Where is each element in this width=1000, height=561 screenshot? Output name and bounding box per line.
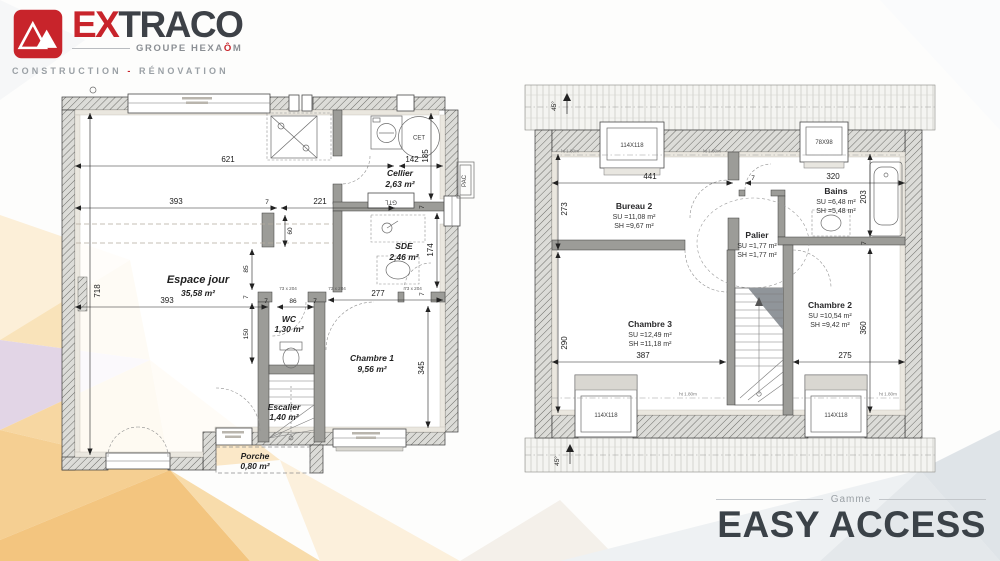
door-size-label: 73 x 204 bbox=[279, 286, 297, 291]
room-bureau2-sh: SH =9,67 m² bbox=[614, 223, 654, 230]
room-chambre3: Chambre 3 bbox=[628, 319, 672, 329]
room-espace-jour: Espace jour bbox=[167, 274, 230, 286]
room-bains-sh: SH =5,48 m² bbox=[816, 208, 856, 215]
ground-floor-plan: CET GTL bbox=[62, 87, 474, 473]
dim-345: 345 bbox=[417, 361, 426, 375]
electrical-panel: GTL bbox=[368, 193, 414, 208]
ff-stairs bbox=[735, 288, 783, 405]
room-sde: SDE bbox=[395, 241, 413, 251]
dim-393a: 393 bbox=[169, 197, 183, 206]
floor-plans: CET GTL bbox=[0, 0, 1000, 561]
room-chambre2-sh: SH =9,42 m² bbox=[810, 322, 850, 329]
water-heater-label: CET bbox=[413, 136, 425, 142]
room-chambre3-su: SU =12,49 m² bbox=[628, 332, 672, 339]
dim-7c: 7 bbox=[264, 298, 268, 305]
dim-85: 85 bbox=[243, 265, 250, 273]
gtl-label: GTL bbox=[385, 199, 397, 205]
dim-203: 203 bbox=[859, 190, 868, 204]
dim-277: 277 bbox=[371, 289, 385, 298]
room-porche: Porche bbox=[241, 451, 270, 461]
dim-142: 142 bbox=[405, 155, 419, 164]
room-bureau2-su: SU =11,08 m² bbox=[613, 214, 657, 221]
logo-group-m: M bbox=[233, 43, 243, 54]
heat-pump-unit: PAC bbox=[457, 162, 474, 198]
roof-angle-bottom: 45° bbox=[553, 456, 561, 466]
ff-roof-bottom: 45° bbox=[525, 438, 935, 472]
dim-273: 273 bbox=[560, 202, 569, 216]
gamme-badge: Gamme EASY ACCESS bbox=[716, 494, 986, 543]
room-wc: WC bbox=[282, 314, 297, 324]
room-chambre1: Chambre 1 bbox=[350, 353, 394, 363]
logo-rule bbox=[72, 48, 130, 49]
dim-718: 718 bbox=[93, 284, 102, 298]
room-chambre1-area: 9,56 m² bbox=[357, 364, 387, 374]
room-cellier: Cellier bbox=[387, 168, 414, 178]
gamme-name: EASY ACCESS bbox=[716, 506, 986, 543]
room-chambre2: Chambre 2 bbox=[808, 300, 852, 310]
window-label-1: 114X118 bbox=[620, 143, 644, 149]
dim-7b-ff: 7 bbox=[861, 241, 868, 245]
extraco-logo: EXTRACO GROUPE HEXAÔM CONSTRUCTION - RÉN… bbox=[12, 8, 262, 76]
window-label-2: 78X98 bbox=[815, 140, 833, 146]
dim-320: 320 bbox=[826, 172, 840, 181]
room-palier: Palier bbox=[745, 230, 769, 240]
dim-290: 290 bbox=[560, 336, 569, 350]
dim-7d: 7 bbox=[313, 298, 317, 305]
room-cellier-area: 2,63 m² bbox=[384, 179, 415, 189]
room-escalier: Escalier bbox=[268, 402, 301, 412]
dim-60: 60 bbox=[287, 227, 294, 235]
pac-label: PAC bbox=[462, 174, 468, 187]
dim-360: 360 bbox=[859, 321, 868, 335]
room-palier-su: SU =1,77 m² bbox=[737, 243, 777, 250]
room-escalier-area: 1,40 m² bbox=[269, 412, 299, 422]
room-bains-su: SU =6,48 m² bbox=[816, 199, 856, 206]
room-espace-jour-area: 35,58 m² bbox=[181, 288, 216, 298]
dim-7b: 7 bbox=[243, 295, 250, 299]
dim-174: 174 bbox=[426, 243, 435, 257]
room-chambre2-su: SU =10,54 m² bbox=[808, 313, 852, 320]
radiator bbox=[78, 277, 87, 311]
logo-ex: EX bbox=[72, 4, 118, 45]
extraco-logo-icon bbox=[12, 8, 64, 60]
room-wc-area: 1,30 m² bbox=[274, 324, 304, 334]
dim-621: 621 bbox=[221, 155, 235, 164]
logo-group-o: Ô bbox=[224, 43, 233, 54]
door-size-label: 73 x 204 bbox=[404, 286, 422, 291]
dim-185: 185 bbox=[421, 149, 430, 163]
window-label-4: 114X118 bbox=[824, 413, 848, 419]
roof-angle-top: 45° bbox=[550, 101, 558, 111]
room-porche-area: 0,80 m² bbox=[240, 461, 270, 471]
logo-group-text: GROUPE HEXA bbox=[136, 43, 224, 54]
ff-roof-top: 45° bbox=[525, 85, 935, 130]
dim-150: 150 bbox=[243, 328, 250, 339]
dim-441: 441 bbox=[643, 172, 657, 181]
first-floor-plan: 45° 45° bbox=[525, 85, 935, 472]
height-mark: ht 1.80m bbox=[561, 149, 579, 154]
height-mark: ht 1.80m bbox=[703, 149, 721, 154]
dim-7e: 7 bbox=[419, 205, 426, 209]
height-mark: ht 1.80m bbox=[679, 392, 697, 397]
dim-387: 387 bbox=[636, 351, 650, 360]
dim-7a-ff: 7 bbox=[751, 175, 755, 182]
room-bains: Bains bbox=[824, 186, 847, 196]
logo-traco: TRACO bbox=[118, 4, 242, 45]
dim-393b: 393 bbox=[160, 296, 174, 305]
gamme-rule-left bbox=[716, 499, 823, 500]
dim-7f: 7 bbox=[419, 292, 426, 296]
dim-221: 221 bbox=[313, 197, 327, 206]
floorplan-sheet: CET GTL bbox=[0, 0, 1000, 561]
dim-7a: 7 bbox=[265, 199, 269, 206]
dim-275: 275 bbox=[838, 351, 852, 360]
gamme-rule-right bbox=[879, 499, 986, 500]
logo-tagline: CONSTRUCTION - RÉNOVATION bbox=[12, 66, 262, 76]
room-sde-area: 2,46 m² bbox=[388, 252, 419, 262]
room-bureau2: Bureau 2 bbox=[616, 201, 653, 211]
height-mark: ht 1.80m bbox=[879, 392, 897, 397]
dim-86: 86 bbox=[289, 298, 297, 305]
window-label-3: 114X118 bbox=[594, 413, 618, 419]
room-chambre3-sh: SH =11,18 m² bbox=[629, 341, 673, 348]
room-palier-sh: SH =1,77 m² bbox=[737, 252, 777, 259]
door-size-label: 73 x 204 bbox=[328, 286, 346, 291]
logo-wordmark: EXTRACO bbox=[72, 8, 242, 42]
